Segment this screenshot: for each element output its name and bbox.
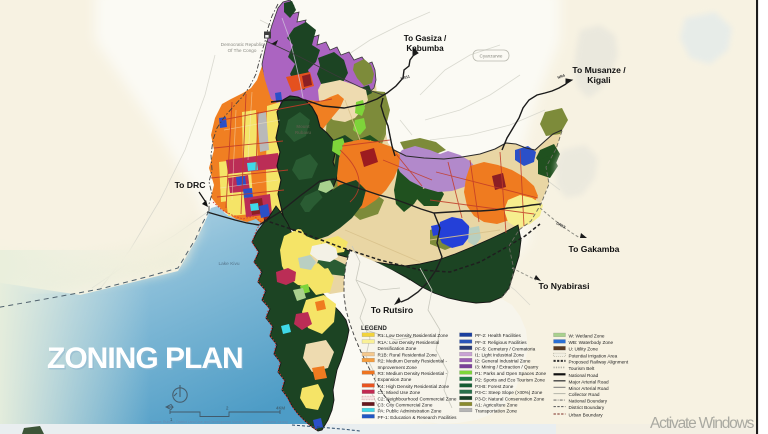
svg-text:Densification Zone: Densification Zone [378, 346, 417, 351]
svg-text:Urban Boundary: Urban Boundary [569, 413, 604, 418]
svg-text:Transportation Zone: Transportation Zone [475, 409, 517, 414]
svg-text:PA: Public Administration Zone: PA: Public Administration Zone [378, 409, 442, 414]
svg-text:National Road: National Road [569, 373, 599, 378]
svg-text:Cyanzarwe: Cyanzarwe [480, 54, 503, 59]
svg-text:WB: Waterbody Zone: WB: Waterbody Zone [569, 340, 614, 345]
svg-text:Kabumba: Kabumba [406, 44, 444, 53]
svg-text:Of The Congo: Of The Congo [228, 48, 257, 53]
svg-text:I3: Mining / Extraction / Quar: I3: Mining / Extraction / Quarry [475, 365, 539, 370]
svg-text:PF-3: Religious Facilities: PF-3: Religious Facilities [475, 340, 527, 345]
svg-text:P3-C: Steep Slope (>30%) Zone: P3-C: Steep Slope (>30%) Zone [475, 390, 543, 395]
svg-text:I1: Light Industrial Zone: I1: Light Industrial Zone [475, 353, 524, 358]
svg-text:W: Wetland Zone: W: Wetland Zone [569, 333, 605, 338]
svg-text:NR4: NR4 [557, 73, 566, 80]
svg-text:Kigali: Kigali [587, 75, 610, 85]
svg-text:U: Utility Zone: U: Utility Zone [569, 347, 599, 352]
svg-text:Activate Windows: Activate Windows [650, 415, 755, 432]
svg-text:LEGEND: LEGEND [361, 325, 387, 332]
svg-text:R3: Medium Density Residential: R3: Medium Density Residential - [378, 371, 448, 376]
svg-text:Minor Arterial Road: Minor Arterial Road [569, 386, 610, 391]
svg-text:To Musanze /: To Musanze / [572, 65, 626, 75]
svg-text:R1A: Low Density Residential: R1A: Low Density Residential [378, 340, 440, 345]
svg-text:R4: High Density Residential Z: R4: High Density Residential Zone [378, 384, 450, 389]
svg-text:Source: Rubavu District Land U: Source: Rubavu District Land Use and Dev… [150, 420, 288, 424]
svg-text:Tourism Belt: Tourism Belt [569, 366, 595, 371]
svg-text:National Boundary: National Boundary [569, 399, 608, 404]
svg-text:A1: Agriculture Zone: A1: Agriculture Zone [475, 403, 518, 408]
svg-text:4KM: 4KM [276, 406, 285, 411]
svg-text:PF-2: Health Facilities: PF-2: Health Facilities [475, 333, 522, 338]
svg-text:DR53: DR53 [556, 221, 566, 229]
svg-text:2: 2 [226, 406, 229, 411]
svg-text:NR11: NR11 [400, 74, 410, 80]
svg-text:C3: City Commercial Zone: C3: City Commercial Zone [378, 403, 433, 408]
svg-text:P2: Sports and Eco Tourism Zon: P2: Sports and Eco Tourism Zone [475, 377, 545, 382]
svg-text:ZONING PLAN: ZONING PLAN [47, 342, 243, 375]
svg-text:Proposed Railway Alignment: Proposed Railway Alignment [569, 360, 629, 365]
svg-text:R2: Medium Density Residential: R2: Medium Density Residential - [378, 359, 448, 364]
svg-text:PF-5: Cemetery / Crematoria: PF-5: Cemetery / Crematoria [475, 346, 536, 351]
svg-text:R1B: Rural Residential Zone: R1B: Rural Residential Zone [378, 353, 438, 358]
svg-text:Collector Road: Collector Road [569, 392, 600, 397]
svg-text:Democratic Republic: Democratic Republic [221, 42, 264, 47]
svg-text:R1: Low Density Residential Zo: R1: Low Density Residential Zone [378, 333, 449, 338]
svg-text:To Nyabirasi: To Nyabirasi [539, 281, 590, 291]
svg-text:I2: General Industrial Zone: I2: General Industrial Zone [475, 359, 531, 364]
svg-text:PF-1: Education & Research Fac: PF-1: Education & Research Facilities [378, 415, 458, 420]
svg-text:Lake Kivu: Lake Kivu [218, 261, 239, 267]
svg-text:To Gasiza /: To Gasiza / [404, 34, 447, 43]
svg-text:P3-D: Natural Conservation Zon: P3-D: Natural Conservation Zone [475, 397, 545, 402]
svg-text:Improvement Zone: Improvement Zone [378, 365, 418, 370]
svg-text:District Boundary: District Boundary [569, 405, 605, 410]
svg-text:Potential Irrigation Area: Potential Irrigation Area [569, 353, 618, 358]
svg-text:P1: Parks and Open Spaces Zone: P1: Parks and Open Spaces Zone [475, 371, 547, 376]
svg-text:To Rutsiro: To Rutsiro [371, 305, 413, 315]
svg-text:To DRC: To DRC [175, 180, 206, 190]
svg-text:C2: Neighbourhood Commercial Z: C2: Neighbourhood Commercial Zone [378, 397, 457, 402]
svg-text:Mount: Mount [296, 124, 310, 129]
svg-text:C1: Mixed Use Zone: C1: Mixed Use Zone [378, 390, 421, 395]
svg-text:Major Arterial Road: Major Arterial Road [569, 379, 610, 384]
svg-text:To Gakamba: To Gakamba [569, 244, 620, 254]
svg-text:Expansion Zone: Expansion Zone [378, 377, 412, 382]
svg-text:Rubavu: Rubavu [295, 130, 311, 135]
svg-text:P3-B: Forest Zone: P3-B: Forest Zone [475, 384, 514, 389]
